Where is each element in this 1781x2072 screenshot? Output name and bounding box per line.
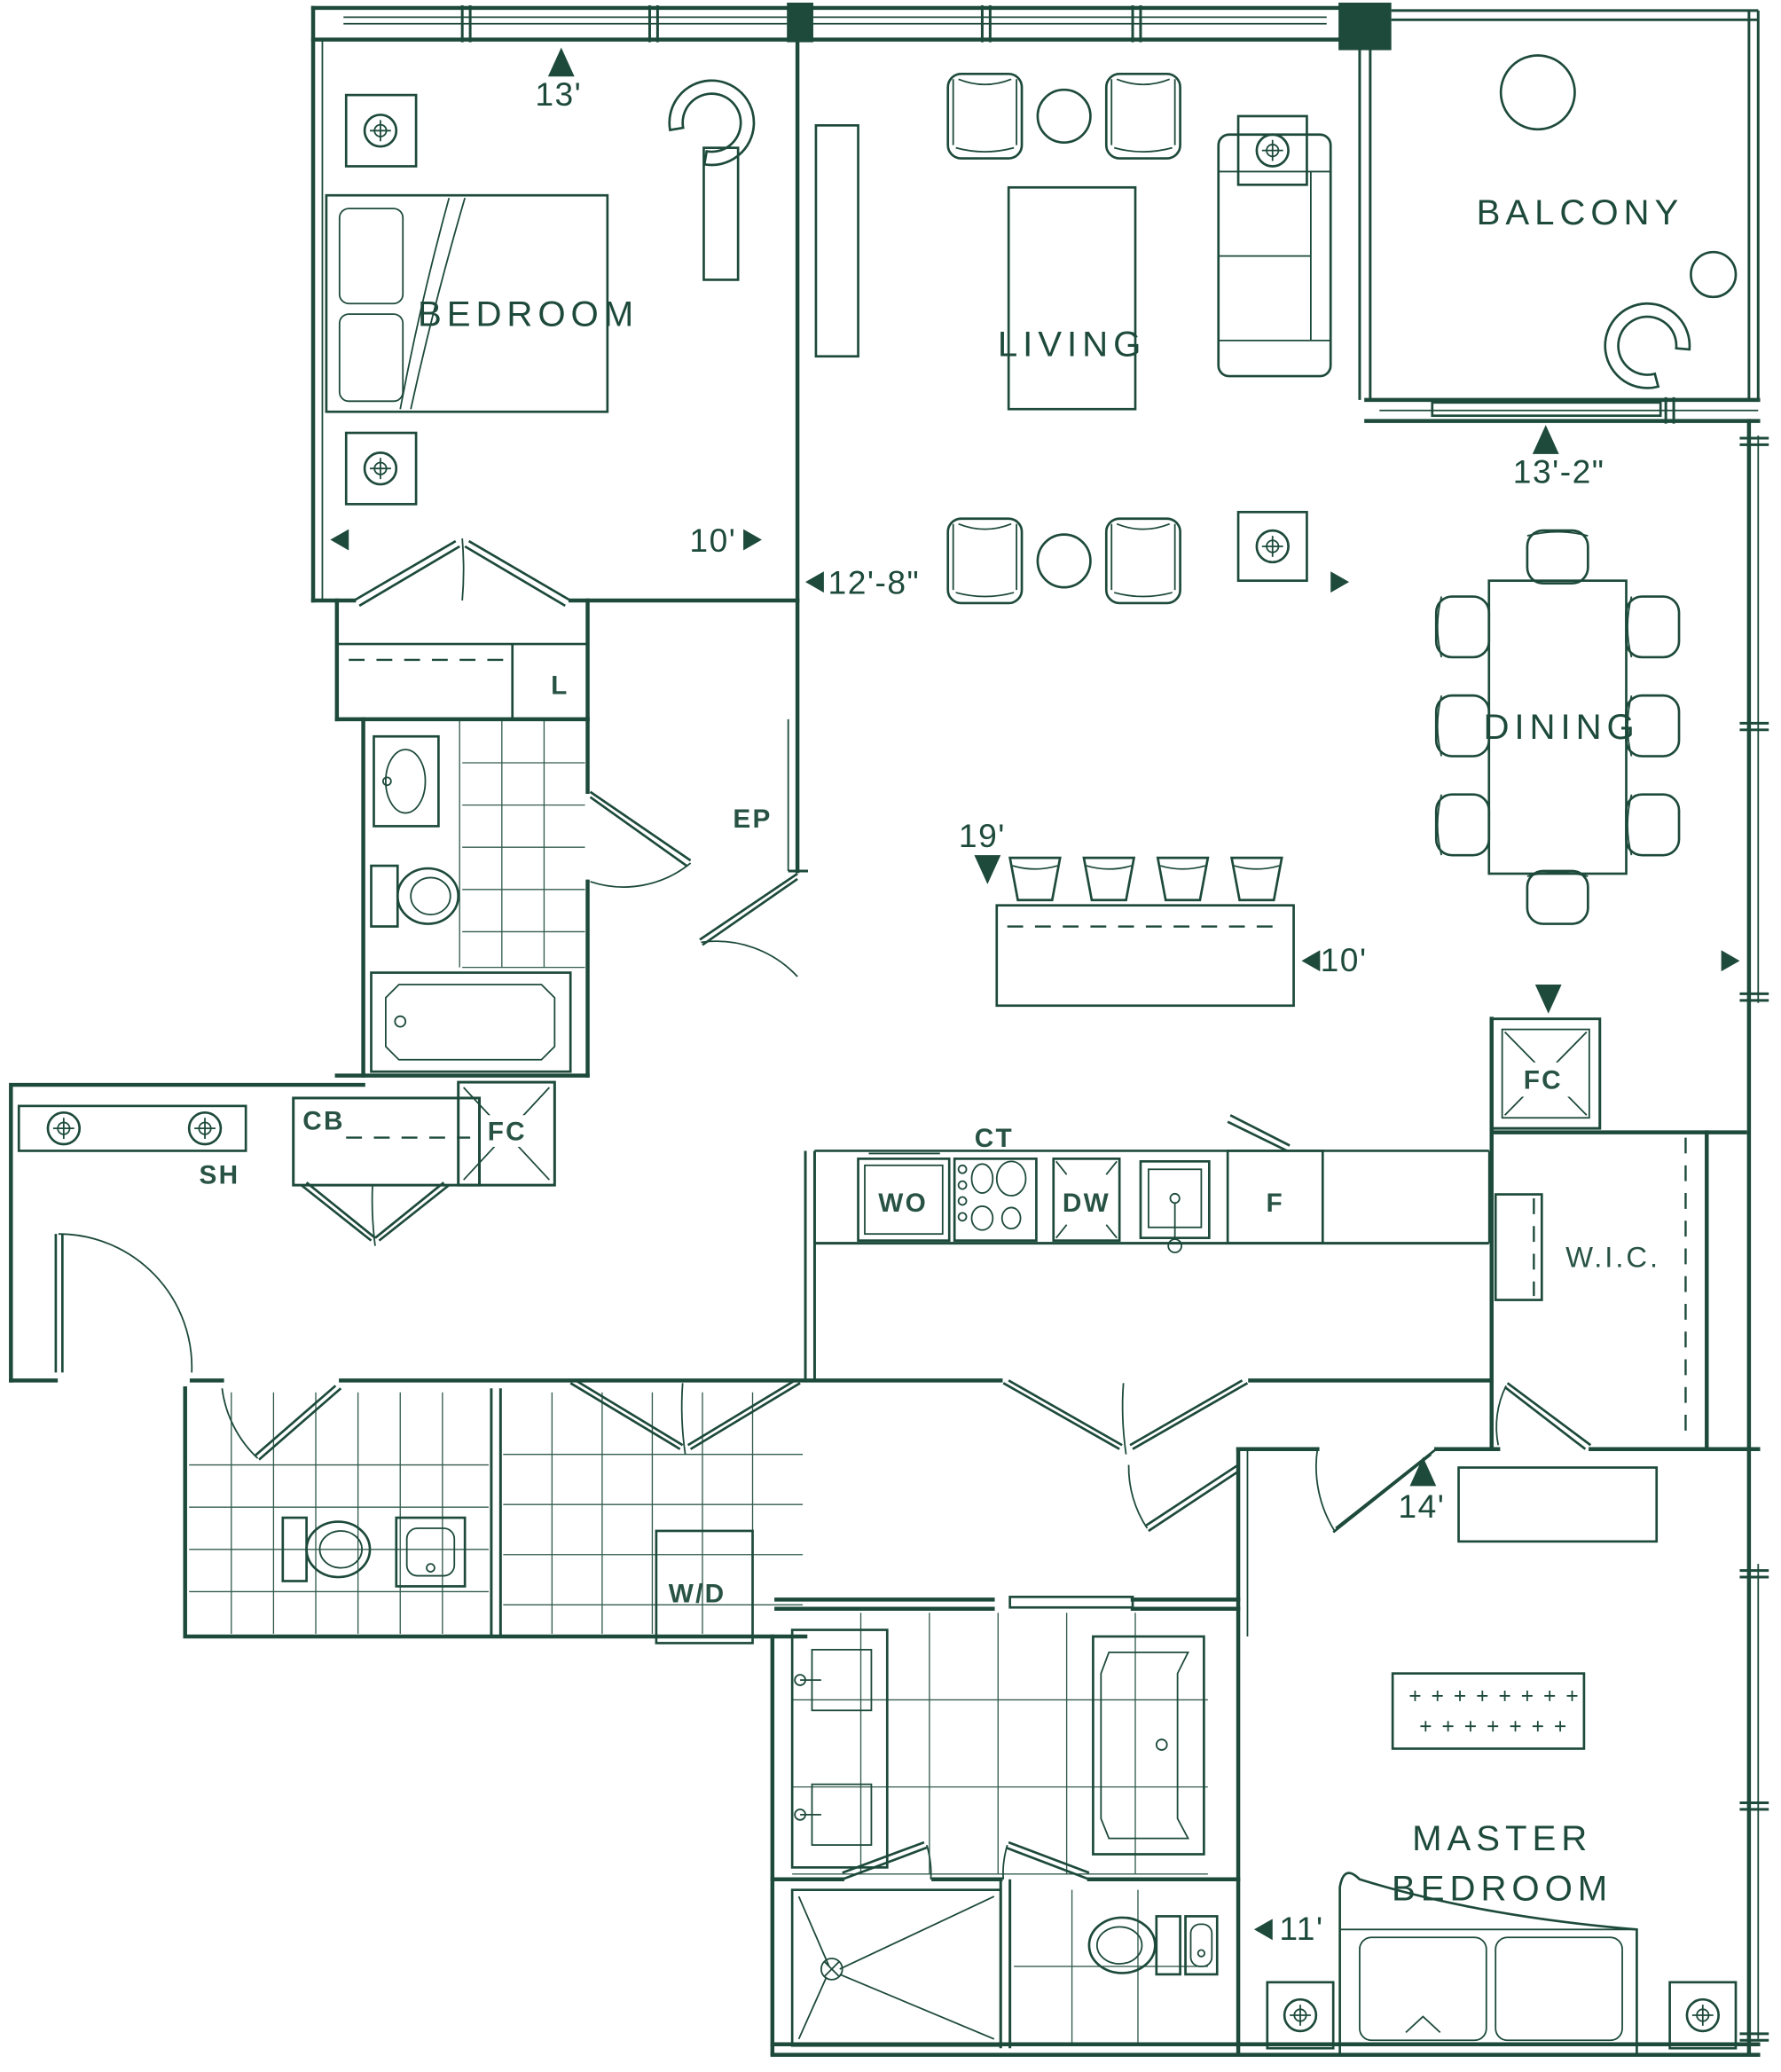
bath1-toilet bbox=[372, 866, 459, 926]
label-bedroom: BEDROOM bbox=[418, 294, 639, 334]
entry-shelf bbox=[19, 1106, 246, 1151]
dim-bedroom-width: 13' bbox=[535, 75, 582, 113]
dim-arrow-left-icon bbox=[330, 530, 349, 551]
media-console bbox=[816, 125, 859, 356]
dim-kitchen-length: 19' bbox=[959, 817, 1006, 854]
label-electrical-panel: EP bbox=[733, 804, 772, 834]
label-wall-oven: WO bbox=[878, 1189, 928, 1218]
dresser bbox=[1459, 1468, 1657, 1542]
dim-master-width: 14' bbox=[1398, 1487, 1445, 1525]
cooktop bbox=[954, 1158, 1036, 1240]
window-pillar bbox=[787, 3, 813, 43]
label-dishwasher: DW bbox=[1063, 1189, 1110, 1218]
label-dining: DINING bbox=[1483, 707, 1639, 747]
dim-arrow-up-icon bbox=[548, 48, 575, 77]
ensuite-sink2 bbox=[1186, 1916, 1218, 1974]
ensuite-tub bbox=[1093, 1636, 1204, 1855]
label-master-line1: MASTER bbox=[1412, 1818, 1592, 1858]
label-fan-coil-kitchen: FC bbox=[1524, 1066, 1563, 1095]
balcony-chair bbox=[1588, 286, 1701, 401]
dim-arrow-up-icon bbox=[1533, 425, 1559, 454]
balcony-side-table bbox=[1691, 252, 1736, 297]
label-shelf: SH bbox=[200, 1161, 240, 1190]
bath2-sink bbox=[396, 1518, 465, 1586]
sofa bbox=[1219, 135, 1330, 376]
dim-arrow-left-icon bbox=[1301, 950, 1320, 971]
label-balcony: BALCONY bbox=[1477, 192, 1684, 232]
label-washer-dryer: W/D bbox=[669, 1579, 726, 1608]
ensuite-pocket-door bbox=[1010, 1597, 1133, 1607]
label-fridge: F bbox=[1267, 1189, 1284, 1218]
side-table bbox=[1038, 90, 1091, 143]
master-bench bbox=[1393, 1674, 1584, 1749]
ensuite-vanity bbox=[792, 1630, 887, 1868]
dim-bedroom-depth: 10' bbox=[689, 522, 736, 559]
floor-plan: BEDROOM LIVING BALCONY DINING W.I.C. MAS… bbox=[0, 0, 1781, 2072]
bedroom-tv bbox=[703, 148, 738, 280]
dim-arrow-up-icon bbox=[1409, 1457, 1436, 1487]
label-closet-cb: CB bbox=[302, 1107, 344, 1136]
label-cooktop: CT bbox=[975, 1124, 1014, 1153]
label-linen: L bbox=[551, 671, 569, 701]
dim-island-length: 10' bbox=[1321, 941, 1368, 978]
dim-arrow-right-icon bbox=[1330, 571, 1349, 593]
kitchen-sink bbox=[1141, 1161, 1209, 1252]
dim-arrow-right-icon bbox=[743, 530, 762, 551]
dim-arrow-left-icon bbox=[1254, 1919, 1273, 1940]
dim-arrow-down-icon bbox=[1535, 985, 1562, 1014]
bedroom-chair bbox=[657, 63, 772, 177]
dim-living-width: 12'-8" bbox=[828, 564, 921, 601]
dim-arrow-down-icon bbox=[974, 855, 1000, 884]
kitchen-counter bbox=[814, 1115, 1488, 1252]
label-living: LIVING bbox=[998, 325, 1146, 365]
label-master-line2: BEDROOM bbox=[1392, 1869, 1612, 1909]
label-wic: W.I.C. bbox=[1565, 1240, 1660, 1273]
dim-arrow-right-icon bbox=[1722, 950, 1740, 971]
floorplan-page: BEDROOM LIVING BALCONY DINING W.I.C. MAS… bbox=[0, 0, 1781, 2072]
dim-ensuite-width: 11' bbox=[1279, 1910, 1323, 1947]
labels: BEDROOM LIVING BALCONY DINING W.I.C. MAS… bbox=[200, 75, 1684, 1947]
bath1-tub bbox=[372, 973, 571, 1072]
dim-arrow-left-icon bbox=[805, 571, 824, 593]
balcony-slider-panel bbox=[1432, 403, 1660, 416]
doors bbox=[56, 538, 1590, 1880]
coffee-table bbox=[1008, 187, 1135, 409]
balcony-table bbox=[1501, 55, 1574, 129]
dim-balcony-width: 13'-2" bbox=[1513, 453, 1605, 491]
interior-walls bbox=[11, 43, 1758, 2054]
side-table bbox=[1038, 535, 1091, 588]
bath1-vanity bbox=[373, 736, 438, 826]
corner-pillar bbox=[1338, 3, 1392, 51]
fridge bbox=[1228, 1115, 1322, 1243]
label-fan-coil-hall: FC bbox=[488, 1118, 527, 1147]
ensuite-shower bbox=[792, 1890, 1000, 2046]
kitchen-island bbox=[997, 906, 1294, 1006]
ensuite-toilet bbox=[1089, 1916, 1181, 1974]
